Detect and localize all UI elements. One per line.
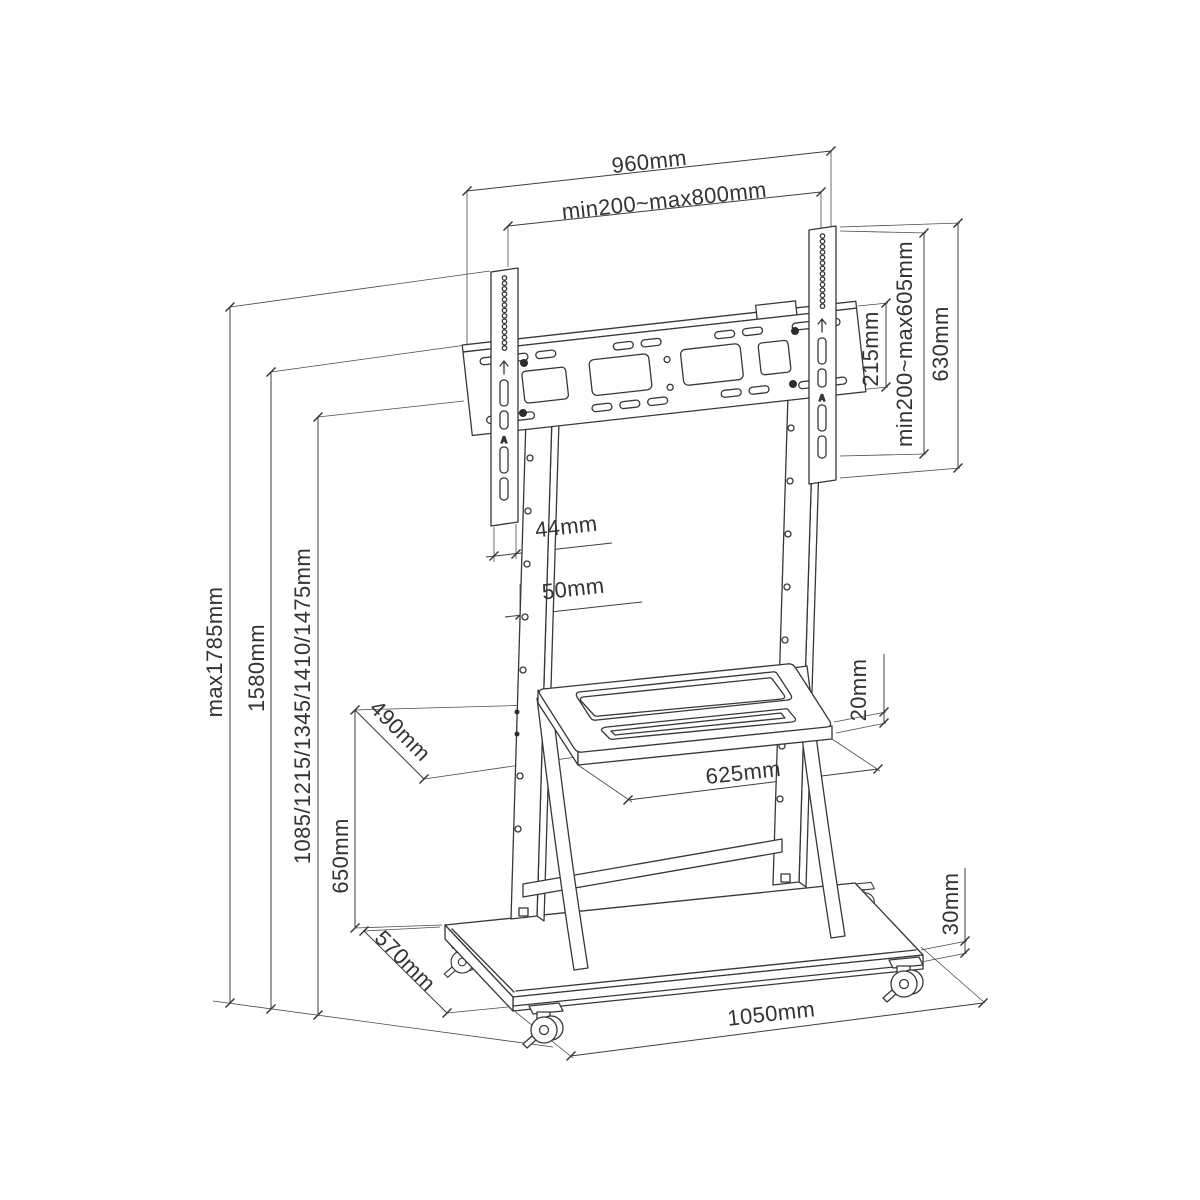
dim-label-shelf-thickness: 20mm xyxy=(846,659,871,722)
dim-label-vesa-width: min200~max800mm xyxy=(560,177,767,224)
dim-label-rail-height: 630mm xyxy=(928,306,953,381)
locking-screw xyxy=(791,327,799,335)
dim-label-base-thickness: 30mm xyxy=(938,873,963,936)
dim-label-base-width: 1050mm xyxy=(726,996,816,1031)
locking-screw xyxy=(519,409,527,417)
dim-label-top-width: 960mm xyxy=(610,145,688,178)
locking-screw xyxy=(789,380,797,388)
tv-stand-figure: A A xyxy=(444,226,923,1048)
rail-badge-label: A xyxy=(501,435,508,445)
dim-label-vesa-height: min200~max605mm xyxy=(892,241,917,447)
dim-label-column-top-height: 1580mm xyxy=(244,624,269,712)
technical-drawing-page: A A 960mm min200~max800mm 215mm min200~m… xyxy=(0,0,1200,1200)
dim-label-bracket-height: 215mm xyxy=(858,311,883,386)
tv-stand-dimension-drawing: A A 960mm min200~max800mm 215mm min200~m… xyxy=(0,0,1200,1200)
locking-screw xyxy=(520,359,528,367)
dim-label-max-height: max1785mm xyxy=(202,587,227,718)
dim-label-shelf-width: 625mm xyxy=(704,756,782,789)
vesa-rail-left: A xyxy=(491,268,518,526)
rail-badge-label: A xyxy=(819,393,826,403)
dim-label-base-depth: 570mm xyxy=(370,925,441,996)
dim-label-shelf-height: 650mm xyxy=(328,818,353,893)
vesa-rail-right: A xyxy=(809,226,836,484)
dim-label-bracket-positions: 1085/1215/1345/1410/1475mm xyxy=(290,548,315,864)
